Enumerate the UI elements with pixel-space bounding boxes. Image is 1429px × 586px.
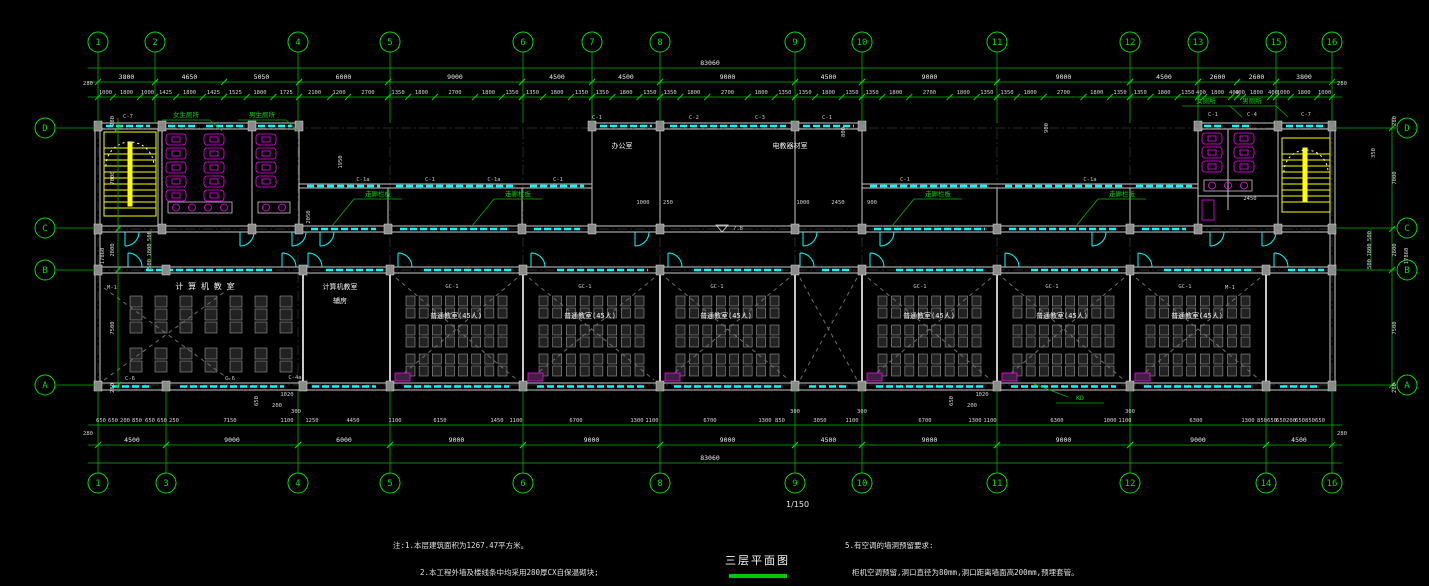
dim-text: 1350 (798, 90, 811, 96)
dim-text: 9000 (449, 436, 465, 444)
floor-plan-canvas[interactable]: 1245678910111213151613456891011121416DCB… (0, 0, 1429, 586)
annotation-label: KD (1076, 394, 1084, 402)
desk (932, 354, 941, 364)
dim-text: 650 (108, 418, 118, 424)
desk (566, 366, 575, 376)
desk (445, 337, 454, 347)
dim-text: 500 (1367, 231, 1373, 241)
squat-stall (256, 148, 276, 159)
squat-stall (1202, 147, 1222, 158)
desk (406, 325, 415, 335)
desk (891, 354, 900, 364)
dim-text: 1800 (1250, 90, 1263, 96)
desk (1026, 337, 1035, 347)
dim-text: 5050 (254, 73, 270, 81)
grid-bubble-label: 11 (992, 479, 1003, 489)
desk (1160, 354, 1169, 364)
dim-text: 280 (110, 116, 116, 126)
desk (945, 296, 954, 306)
door-arc (800, 253, 814, 267)
column (1126, 265, 1134, 275)
stair-rail (128, 142, 132, 206)
dim-text: 1800 (550, 90, 563, 96)
computer-desk (180, 361, 192, 372)
window-tag: C-4a (288, 375, 301, 381)
room-label: 普通教室(45人) (430, 311, 482, 320)
computer-desk (205, 309, 217, 320)
dim-text: 300 (291, 409, 301, 415)
door-arc (1210, 232, 1224, 246)
room-label: 办公室 (612, 141, 633, 150)
dim-text: 1800 (183, 90, 196, 96)
grid-bubble-label: 14 (1261, 479, 1272, 489)
squat-pan (172, 179, 180, 184)
dim-text: 1350 (505, 90, 518, 96)
desk (485, 354, 494, 364)
podium (528, 373, 543, 381)
desk (485, 308, 494, 318)
desk (676, 308, 685, 318)
desk (689, 366, 698, 376)
desk (406, 296, 415, 306)
grid-bubble-label: 8 (657, 479, 662, 489)
squat-stall (1202, 133, 1222, 144)
window-tag: C-1 (592, 115, 602, 121)
dim-text: 4650 (182, 73, 198, 81)
note-right-1: 5.有空调的墙洞预留要求: (845, 540, 934, 551)
grid-bubble-label: 3 (163, 479, 168, 489)
sink-basin (173, 204, 180, 211)
door-arc (398, 253, 412, 267)
grid-bubble-label: 15 (1271, 38, 1282, 48)
window-tag: C-1a (487, 177, 500, 183)
dim-text: 2450 (1243, 196, 1256, 202)
window-tag: C-1a (356, 177, 369, 183)
desk (703, 354, 712, 364)
desk (959, 366, 968, 376)
desk (743, 325, 752, 335)
desk (485, 325, 494, 335)
dim-text: 280 (83, 431, 93, 437)
desk (1013, 354, 1022, 364)
squat-stall (166, 176, 186, 187)
room-label: 计 算 机 教 室 (175, 281, 234, 291)
column (94, 381, 102, 391)
dim-text: 4500 (124, 436, 140, 444)
squat-stall (1234, 133, 1254, 144)
cad-drawing: 1245678910111213151613456891011121416DCB… (0, 0, 1429, 586)
door-arc (125, 232, 139, 246)
desk (1079, 366, 1088, 376)
dim-text: 1000 (636, 200, 649, 206)
dim-text: 6000 (336, 436, 352, 444)
dim-text: 1250 (305, 418, 318, 424)
door-arc (308, 253, 322, 267)
dim-text: 200 (272, 403, 282, 409)
dim-text: 850 (132, 418, 142, 424)
squat-stall (1234, 161, 1254, 172)
desk (1052, 366, 1061, 376)
desk (1146, 354, 1155, 364)
dim-text: 17860 (1404, 248, 1410, 265)
desk (959, 354, 968, 364)
squat-stall (256, 134, 276, 145)
dim-text: 850 (1257, 418, 1267, 424)
squat-stall (204, 148, 224, 159)
grid-bubble-label: D (42, 124, 47, 134)
drawing-scale: 1/150 (786, 500, 809, 509)
computer-desk (130, 348, 142, 359)
dim-text: 4500 (549, 73, 565, 81)
desk (498, 308, 507, 318)
computer-desk (280, 361, 292, 372)
dim-text: 1800 (120, 90, 133, 96)
desk (635, 354, 644, 364)
dim-text: 9000 (447, 73, 463, 81)
desk (406, 308, 415, 318)
computer-desk (230, 322, 242, 333)
door-arcs (125, 232, 1288, 267)
desk (1092, 354, 1101, 364)
dim-text: 650 (254, 396, 260, 406)
column (94, 224, 102, 234)
desk (676, 337, 685, 347)
desk (445, 354, 454, 364)
layout-cross (800, 278, 857, 380)
desk (1200, 354, 1209, 364)
desk (539, 296, 548, 306)
desk (1160, 337, 1169, 347)
squat-pan (1240, 164, 1248, 169)
computer-desk (205, 361, 217, 372)
desk (1241, 337, 1250, 347)
desk (608, 325, 617, 335)
desk (1187, 366, 1196, 376)
desk (757, 325, 766, 335)
desk (689, 354, 698, 364)
podium (1135, 373, 1150, 381)
desk (539, 354, 548, 364)
desk (878, 308, 887, 318)
grid-bubble-label: 9 (792, 479, 797, 489)
desk (580, 366, 589, 376)
desk (676, 325, 685, 335)
desk (1227, 296, 1236, 306)
desk (1187, 354, 1196, 364)
dim-text: 400 (1235, 90, 1245, 96)
dim-text: 1350 (1000, 90, 1013, 96)
dim-text: 1800 (482, 90, 495, 96)
desk (1173, 325, 1182, 335)
desk (689, 296, 698, 306)
desk (419, 308, 428, 318)
desk (594, 296, 603, 306)
window-tag: C-7 (123, 114, 133, 120)
dim-text: 2700 (923, 90, 936, 96)
dim-text: 280 (1392, 383, 1398, 393)
desk (1026, 354, 1035, 364)
door-arc (870, 253, 884, 267)
squat-pan (262, 151, 270, 156)
dim-text: 280 (83, 81, 93, 87)
desk (1026, 308, 1035, 318)
computer-desk (205, 322, 217, 333)
door-arc (1005, 253, 1019, 267)
desk (1241, 354, 1250, 364)
dim-text: 1100 (845, 418, 858, 424)
annotation-text: 1245678910111213151613456891011121416DCB… (35, 32, 1417, 493)
dim-text: 2100 (308, 90, 321, 96)
desk (918, 337, 927, 347)
window-tag: C-6 (225, 376, 235, 382)
window-tag: C-2 (689, 115, 699, 121)
door-arc (1092, 232, 1106, 246)
squat-stall (256, 176, 276, 187)
desk (730, 366, 739, 376)
dim-text: 300 (1125, 409, 1135, 415)
desk (1173, 296, 1182, 306)
desk (1146, 296, 1155, 306)
desk (472, 325, 481, 335)
dim-text: 6700 (569, 418, 582, 424)
desk (1160, 296, 1169, 306)
window-tag: C-1 (822, 115, 832, 121)
desk (1039, 296, 1048, 306)
column (858, 265, 866, 275)
dim-text: 1350 (845, 90, 858, 96)
dim-text: 1450 (490, 418, 503, 424)
desk (972, 308, 981, 318)
podium (867, 373, 882, 381)
dim-text: 1000 (1277, 90, 1290, 96)
dim-text: 4500 (618, 73, 634, 81)
grid-bubble-label: C (1404, 224, 1409, 234)
dim-text: 2700 (721, 90, 734, 96)
dim-text: 2600 (1249, 73, 1265, 81)
desk (905, 354, 914, 364)
dim-text: 1350 (778, 90, 791, 96)
squat-stall (204, 176, 224, 187)
desk (716, 337, 725, 347)
desk (459, 337, 468, 347)
desk (1160, 308, 1169, 318)
dim-text: 250 (169, 418, 179, 424)
desk (553, 325, 562, 335)
squat-stall (166, 148, 186, 159)
dim-text: 650 (145, 418, 155, 424)
door-arc (128, 253, 142, 267)
dim-text: 6700 (918, 418, 931, 424)
grid-bubble-label: 16 (1327, 38, 1338, 48)
column (94, 265, 102, 275)
desk (1066, 296, 1075, 306)
dim-text: 1350 (575, 90, 588, 96)
grid-bubble-label: 6 (520, 38, 525, 48)
desk (1241, 325, 1250, 335)
dim-text: 1800 (687, 90, 700, 96)
desk (689, 325, 698, 335)
computer-desk (155, 322, 167, 333)
desk (406, 354, 415, 364)
dim-text: 1425 (207, 90, 220, 96)
grid-bubble-label: 7 (589, 38, 594, 48)
desk (918, 296, 927, 306)
dim-text: 1000 (796, 200, 809, 206)
desk (945, 325, 954, 335)
desk (432, 354, 441, 364)
desk (945, 366, 954, 376)
door-arc (320, 232, 334, 246)
desk (770, 325, 779, 335)
desk (472, 366, 481, 376)
desk (498, 325, 507, 335)
desk (757, 296, 766, 306)
desk (553, 366, 562, 376)
stair-rail (1303, 148, 1307, 202)
squat-stall (166, 190, 186, 201)
window-tag: C-6 (125, 376, 135, 382)
window-tag: GC-1 (445, 284, 458, 290)
desk (1026, 325, 1035, 335)
grid-bubble-label: 9 (792, 38, 797, 48)
desk (419, 325, 428, 335)
computer-desk (155, 309, 167, 320)
dim-text: 1020 (975, 392, 988, 398)
dim-text: 1000 (1318, 90, 1331, 96)
column (656, 381, 664, 391)
column (993, 381, 1001, 391)
dim-text: 200 (967, 403, 977, 409)
column (162, 381, 170, 391)
dim-text: 7500 (1392, 321, 1398, 334)
dim-text: 1800 (889, 90, 902, 96)
grid-bubble-label: 2 (152, 38, 157, 48)
desk (445, 296, 454, 306)
overall-dim: 83060 (700, 454, 720, 462)
room-label: 辅房 (333, 296, 347, 305)
sink-basin (205, 204, 212, 211)
desk (635, 308, 644, 318)
desk (716, 354, 725, 364)
desk (891, 337, 900, 347)
podium (395, 373, 410, 381)
squat-stall (204, 190, 224, 201)
computer-desk (280, 348, 292, 359)
dim-text: 1800 (1297, 90, 1310, 96)
window-tag: C-1 (553, 177, 563, 183)
column (518, 224, 526, 234)
desk (432, 296, 441, 306)
desk (716, 296, 725, 306)
desk (1039, 354, 1048, 364)
desk (730, 337, 739, 347)
desk (1227, 354, 1236, 364)
dim-text: 1350 (391, 90, 404, 96)
computer-desk (180, 309, 192, 320)
dim-text: 500 (147, 231, 153, 241)
grid-bubble-label: 5 (387, 38, 392, 48)
dim-text: 850 (1305, 418, 1315, 424)
room-label: 普通教室(45人) (1171, 311, 1223, 320)
dim-text: 500 (1367, 259, 1373, 269)
annotation-label: 走廊栏板 (505, 189, 532, 198)
dim-text: 9000 (720, 73, 736, 81)
column (299, 265, 307, 275)
desk (689, 308, 698, 318)
dim-text: 9000 (224, 436, 240, 444)
desk (1052, 354, 1061, 364)
squat-stall (204, 162, 224, 173)
desk (689, 337, 698, 347)
squat-pan (1240, 150, 1248, 155)
door-arc (1274, 253, 1288, 267)
overall-dim: 83060 (700, 59, 720, 67)
column (384, 224, 392, 234)
dim-text: 900 (1044, 123, 1050, 133)
dim-text: 500 (147, 259, 153, 269)
desk (580, 354, 589, 364)
dim-text: 6700 (703, 418, 716, 424)
desk (1173, 354, 1182, 364)
desk (972, 354, 981, 364)
grid-bubble-label: 8 (657, 38, 662, 48)
desk (1105, 325, 1114, 335)
squat-pan (1208, 136, 1216, 141)
desk (891, 325, 900, 335)
desk (972, 296, 981, 306)
dim-text: 2450 (831, 200, 844, 206)
desk (1039, 325, 1048, 335)
desk (918, 366, 927, 376)
desk (1146, 325, 1155, 335)
desk (566, 354, 575, 364)
computer-desk (130, 309, 142, 320)
desk (539, 325, 548, 335)
podium (1002, 373, 1017, 381)
desk (1187, 296, 1196, 306)
squat-stall (204, 134, 224, 145)
column (858, 224, 866, 234)
note-right-2: 柜机空调预留,洞口直径为80mm,洞口距离墙面高200mm,预埋套管。 (852, 567, 1079, 578)
column (295, 224, 303, 234)
computer-desk (180, 296, 192, 307)
desk (1214, 366, 1223, 376)
dim-text: 1350 (596, 90, 609, 96)
sink-counter (168, 202, 232, 213)
desk (621, 308, 630, 318)
desk (553, 308, 562, 318)
desk (959, 308, 968, 318)
window-tag: C-3 (755, 115, 765, 121)
squat-stall (256, 162, 276, 173)
desk (905, 325, 914, 335)
dim-text: 1000 (141, 90, 154, 96)
sink-basin (1241, 182, 1248, 189)
door-arc (880, 232, 894, 246)
dim-text: 9000 (584, 436, 600, 444)
room-label: 普通教室(45人) (1036, 311, 1088, 320)
drawing-title: 三层平面图 (725, 552, 790, 568)
desk (472, 354, 481, 364)
desk (1052, 337, 1061, 347)
computer-desk (255, 361, 267, 372)
window-tag: C-4 (1247, 112, 1258, 118)
desk (1079, 325, 1088, 335)
desk (891, 296, 900, 306)
column (1328, 265, 1336, 275)
dim-text: 1800 (619, 90, 632, 96)
desk (553, 337, 562, 347)
